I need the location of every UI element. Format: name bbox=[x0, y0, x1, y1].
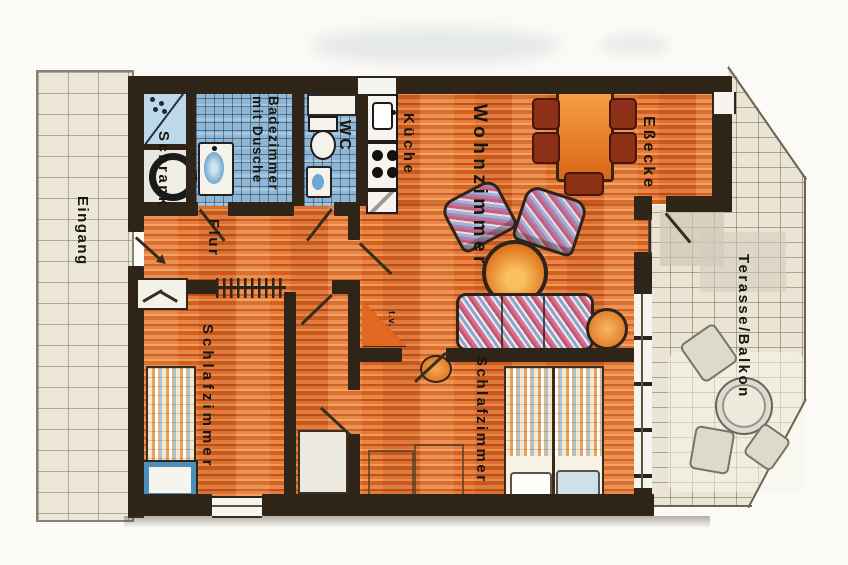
wall-bottom-left bbox=[128, 494, 212, 516]
entrance-tiled-path bbox=[36, 70, 134, 522]
terrace-bottom-edge-line bbox=[648, 505, 752, 507]
bed-foot-frame bbox=[144, 462, 196, 498]
room-label-wc: WC bbox=[335, 120, 352, 153]
wardrobe-box bbox=[298, 430, 348, 494]
tv-corner-unit bbox=[362, 300, 406, 346]
handbasin-bowl bbox=[312, 174, 324, 190]
side-table-round bbox=[586, 308, 628, 350]
dining-table bbox=[556, 90, 614, 182]
wc-toilet-bowl bbox=[310, 130, 336, 160]
dining-chair bbox=[532, 132, 560, 164]
wall-living-bedroom2-a bbox=[348, 348, 402, 362]
kitchen-worktop bbox=[366, 190, 398, 214]
wall-right-dining bbox=[712, 114, 732, 208]
wc-shelf bbox=[307, 94, 357, 116]
scan-smudge bbox=[600, 34, 670, 56]
wall-hall-bedroom2-a bbox=[348, 362, 360, 390]
wall-hall-bedroom2-b bbox=[348, 434, 360, 496]
radiator-box bbox=[136, 278, 188, 310]
wall-top bbox=[128, 76, 732, 94]
badezimmer-line1: Badezimmer bbox=[265, 96, 281, 191]
bath-washbasin bbox=[198, 142, 234, 196]
basin-faucet-dot bbox=[212, 146, 217, 151]
terrace-right-edge-line bbox=[804, 176, 806, 400]
sink-faucet-dot bbox=[391, 110, 396, 115]
room-label-terrasse-balkon: Terasse/Balkon bbox=[735, 254, 751, 399]
wall-bath-wc bbox=[292, 90, 304, 206]
wall-hall-bedroom1-b bbox=[332, 280, 350, 294]
room-label-wohnzimmer: Wohnzimmer bbox=[469, 104, 489, 268]
dining-window bbox=[712, 92, 736, 114]
shower-head-icon bbox=[150, 97, 155, 102]
wall-bedroom1-hall-vertical bbox=[284, 292, 296, 496]
bed-center-line bbox=[552, 368, 555, 498]
bedroom1-window bbox=[212, 496, 262, 518]
bed-single bbox=[146, 366, 196, 466]
radiator-zigzag-line bbox=[159, 290, 178, 302]
bedroom-furniture-outline bbox=[414, 444, 464, 496]
badezimmer-line2: mit Dusche bbox=[249, 96, 265, 191]
wall-bottom-main bbox=[262, 494, 654, 516]
plan-bottom-shadow bbox=[124, 516, 710, 528]
wall-hall-bedroom1-a bbox=[188, 280, 218, 294]
wall-shower-bath bbox=[186, 90, 196, 206]
kitchen-window bbox=[356, 78, 398, 94]
wall-terrace-step bbox=[666, 196, 732, 212]
room-label-schlafzimmer-links: Schlafzimmer bbox=[199, 324, 215, 470]
dining-chair bbox=[564, 172, 604, 196]
room-label-kueche: Küche bbox=[400, 113, 416, 176]
room-label-schrank: Schrank bbox=[155, 131, 171, 208]
stove-burners bbox=[372, 150, 383, 161]
wall-hall-living-upper bbox=[348, 202, 360, 240]
wall-right-b bbox=[634, 252, 652, 292]
terrace-door-leaf bbox=[649, 215, 652, 255]
label-tv: t.v. bbox=[387, 311, 396, 327]
room-label-flur: Flur bbox=[205, 219, 221, 257]
sink-bowl bbox=[372, 102, 393, 130]
dining-chair bbox=[609, 98, 637, 130]
scan-smudge bbox=[310, 28, 560, 64]
sofa bbox=[456, 293, 594, 351]
bedroom2-terrace-window bbox=[634, 292, 652, 490]
room-label-schlafzimmer-rechts: Schlafzimmer bbox=[473, 356, 489, 484]
wall-bathblock-hall-b bbox=[228, 202, 294, 216]
dining-chair bbox=[609, 132, 637, 164]
wardrobe-hatch bbox=[216, 278, 286, 298]
terrace-chair bbox=[688, 425, 735, 475]
room-label-essecke: Eßecke bbox=[639, 116, 656, 190]
room-label-badezimmer: Badezimmer mit Dusche bbox=[249, 96, 281, 191]
scanned-floorplan-page: { "floorplan": { "labels": { "eingang": … bbox=[0, 0, 848, 565]
bedroom-furniture-outline bbox=[368, 450, 414, 496]
room-label-eingang: Eingang bbox=[74, 196, 90, 266]
basin-bowl bbox=[204, 152, 224, 184]
wall-right-c bbox=[634, 486, 652, 516]
wc-handbasin bbox=[306, 166, 332, 198]
kitchen-stove bbox=[366, 142, 398, 190]
dining-chair bbox=[532, 98, 560, 130]
bed-double bbox=[504, 366, 604, 500]
wall-wc-kitchen bbox=[356, 90, 368, 206]
kitchen-sink-unit bbox=[366, 94, 398, 142]
